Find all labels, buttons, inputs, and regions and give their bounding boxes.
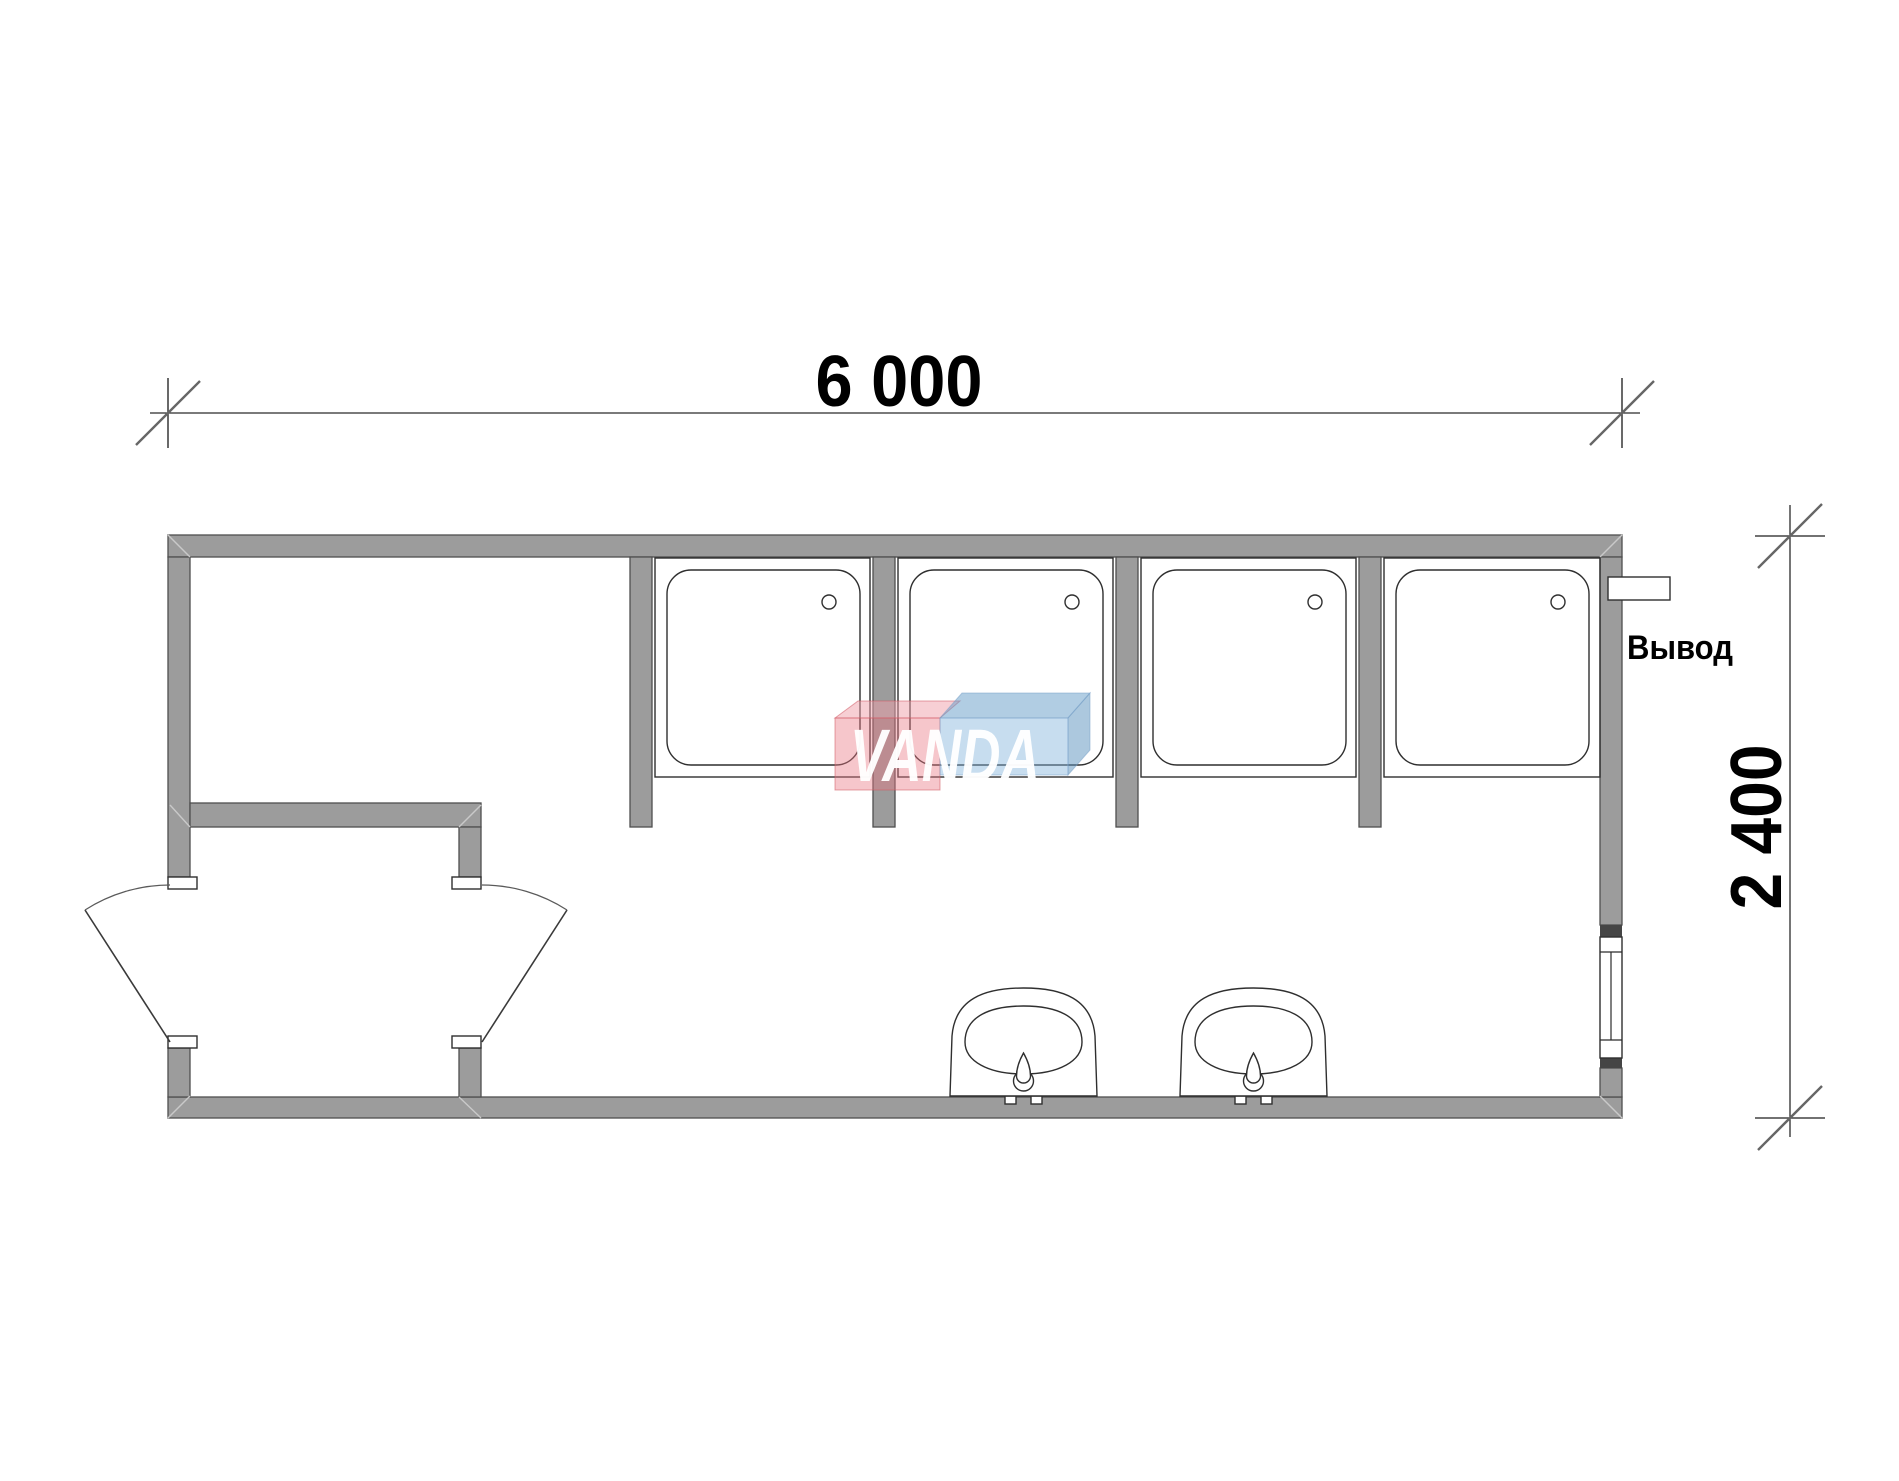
door-leaf [482, 910, 567, 1042]
partition-wall-3 [1116, 557, 1138, 827]
wall-left-lower [168, 1048, 190, 1097]
wall-bottom [168, 1097, 1622, 1118]
shower-drain [822, 595, 836, 609]
dimension-width-label: 6 000 [816, 342, 983, 422]
shower-drain [1308, 595, 1322, 609]
window-jamb [1600, 1058, 1622, 1068]
wall-right-upper [1600, 557, 1622, 925]
door-swing-arc [482, 885, 567, 910]
partition-wall-4 [1359, 557, 1381, 827]
door-jamb [168, 1036, 197, 1048]
wall-top [168, 535, 1622, 557]
floor-plan-canvas: 6 000 2 400 [0, 0, 1899, 1481]
sink-mount-tab [1031, 1096, 1042, 1104]
door-swing-arc [85, 885, 170, 910]
dimension-height: 2 400 [1717, 504, 1825, 1150]
sink-mount-tab [1235, 1096, 1246, 1104]
watermark: VANDA [835, 693, 1090, 797]
sink-mount-tab [1261, 1096, 1272, 1104]
partition-wall-1 [630, 557, 652, 827]
dimension-height-label: 2 400 [1717, 745, 1797, 910]
outlet-label: Вывод [1627, 629, 1733, 667]
outlet: Вывод [1608, 577, 1733, 667]
vestibule-wall-top [190, 803, 481, 827]
dimension-width: 6 000 [136, 342, 1654, 448]
shower-stall-4 [1384, 558, 1600, 777]
outlet-stub [1608, 577, 1670, 600]
sink-2 [1180, 988, 1327, 1104]
interior-door [452, 877, 567, 1048]
door-jamb [452, 1036, 481, 1048]
door-leaf [85, 910, 170, 1042]
sink-mount-tab [1005, 1096, 1016, 1104]
wall-right-lower [1600, 1068, 1622, 1097]
entrance-door [85, 877, 197, 1048]
door-jamb [452, 877, 481, 889]
shower-drain [1065, 595, 1079, 609]
shower-stall-3 [1141, 558, 1356, 777]
shower-drain [1551, 595, 1565, 609]
window [1600, 925, 1622, 1068]
watermark-text: VANDA [850, 714, 1040, 797]
wall-left-upper [168, 557, 190, 877]
door-jamb [168, 877, 197, 889]
window-jamb [1600, 925, 1622, 937]
vestibule-wall-stub [459, 1048, 481, 1097]
vestibule-wall-return [459, 827, 481, 877]
sink-1 [950, 988, 1097, 1104]
floor-plan-page: 6 000 2 400 [0, 0, 1899, 1481]
